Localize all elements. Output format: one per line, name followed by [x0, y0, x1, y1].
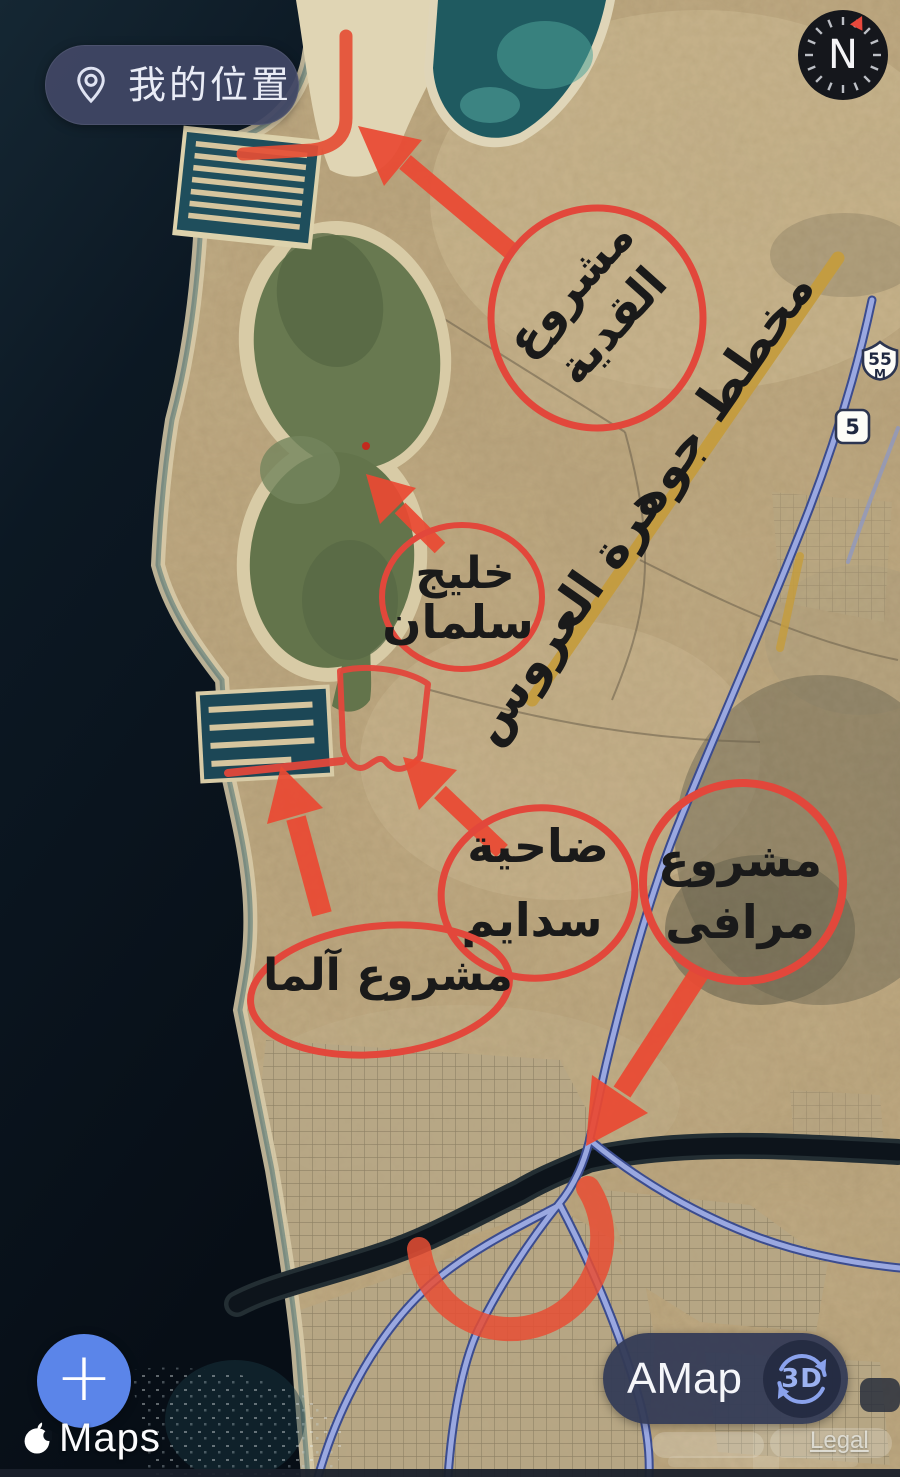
compass-n-label: N [797, 9, 889, 101]
route-shield-55m: 55 M [863, 342, 897, 381]
my-location-label: 我的位置 [128, 66, 292, 104]
location-pin-icon [70, 64, 112, 106]
sadayem-label-line1: ضاحية [467, 819, 609, 873]
amap-3d-control: AMap 3D [603, 1333, 848, 1424]
bottom-strip [0, 1469, 900, 1477]
amap-wordmark: AMap [627, 1357, 742, 1401]
plus-icon: + [56, 1344, 113, 1412]
my-location-button[interactable]: 我的位置 [45, 45, 299, 125]
satellite-map-canvas[interactable]: 55 M 5 [0, 0, 900, 1477]
marafy-label-line2: مرافى [665, 895, 815, 949]
alma-label: مشروع آلما [263, 947, 513, 1001]
apple-maps-logo: Maps [22, 1418, 161, 1458]
map-red-dot [362, 442, 370, 450]
compass-button[interactable]: N [797, 9, 889, 101]
mode-3d-button[interactable]: 3D [763, 1340, 841, 1418]
salman-label-line1: خليج [415, 548, 514, 599]
zoom-in-button[interactable]: + [37, 1334, 131, 1428]
route-shield-5: 5 [836, 410, 869, 443]
apple-maps-wordmark: Maps [59, 1418, 161, 1458]
mode-3d-label: 3D [763, 1340, 841, 1418]
shield-55-suffix: M [874, 367, 886, 381]
marafy-label-line1: مشروع [658, 833, 822, 887]
shield-5-number: 5 [845, 415, 860, 439]
map-screen: 55 M 5 [0, 0, 900, 1477]
apple-icon [22, 1420, 52, 1456]
salman-label-line2: سلمان [382, 595, 533, 649]
legal-link[interactable]: Legal [810, 1429, 869, 1453]
